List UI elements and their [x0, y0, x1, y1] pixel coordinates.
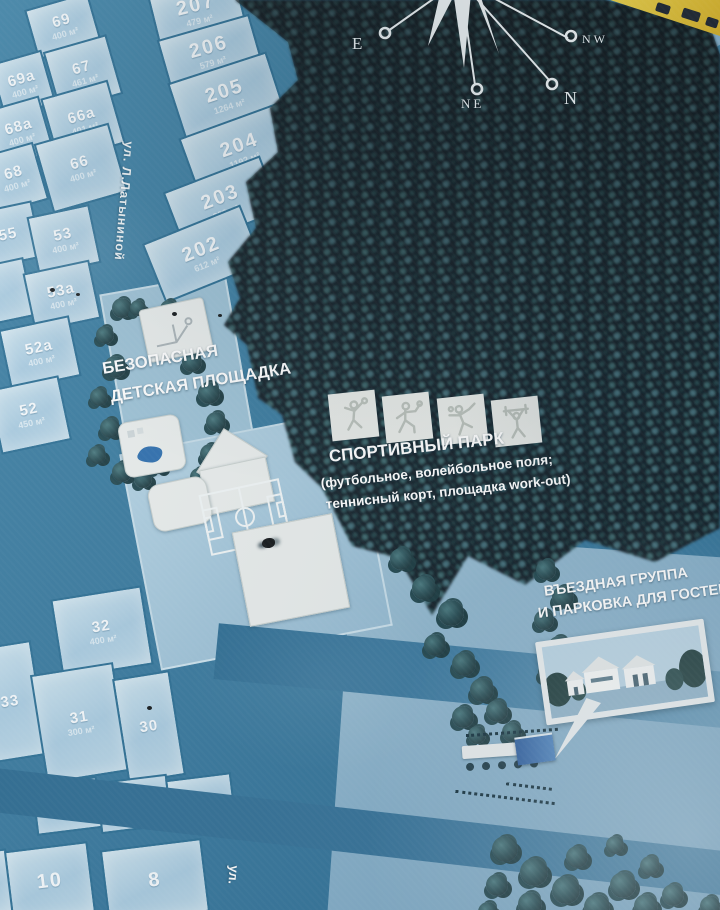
tree-clump [390, 548, 412, 570]
tree-clump [112, 298, 132, 318]
compass-rose [0, 0, 720, 130]
tree-clump [438, 600, 464, 626]
tree-clump [610, 872, 636, 898]
playground-pool-card [117, 413, 188, 479]
tree-clump [700, 896, 720, 910]
tree-clump [470, 678, 494, 702]
tree-clump [88, 446, 106, 464]
tree-clump [412, 576, 436, 600]
tree-clump [424, 634, 446, 656]
volleyball-court [232, 513, 350, 627]
tree-clump [606, 836, 624, 854]
tree-clump [662, 884, 684, 906]
tree-clump [486, 874, 508, 896]
sport-icon-volleyball [328, 390, 380, 442]
tree-clump [536, 560, 556, 580]
fly-speck [172, 312, 177, 316]
tree-clump [566, 846, 588, 868]
tree-clump [640, 856, 660, 876]
tree-clump [100, 418, 120, 438]
entrance-callout-image [542, 625, 708, 718]
compass-label-ne: NE [461, 96, 484, 112]
tree-clump [518, 892, 542, 910]
tree-clump [96, 326, 114, 344]
compass-label-e: E [352, 34, 362, 54]
compass-label-nw: NW [582, 32, 608, 47]
fly-speck [76, 293, 80, 296]
tree-clump [492, 836, 518, 862]
fly-speck [147, 706, 152, 710]
compass-label-n: N [564, 88, 577, 109]
entrance-gate-building [514, 732, 556, 765]
fly-speck [50, 288, 55, 292]
tree-clump [452, 652, 476, 676]
sport-icon-tennis-run [382, 392, 434, 444]
tree-clump [486, 700, 508, 722]
tree-clump [552, 876, 580, 904]
street-label-bottom: ул. [225, 865, 242, 885]
site-plan-photo: 69 400 м² 69а 400 м² 67 461 м² 68а 400 м… [0, 0, 720, 910]
tree-clump [452, 706, 474, 728]
tree-clump [90, 388, 108, 406]
fly-speck [218, 314, 222, 317]
tree-clump [520, 858, 548, 886]
